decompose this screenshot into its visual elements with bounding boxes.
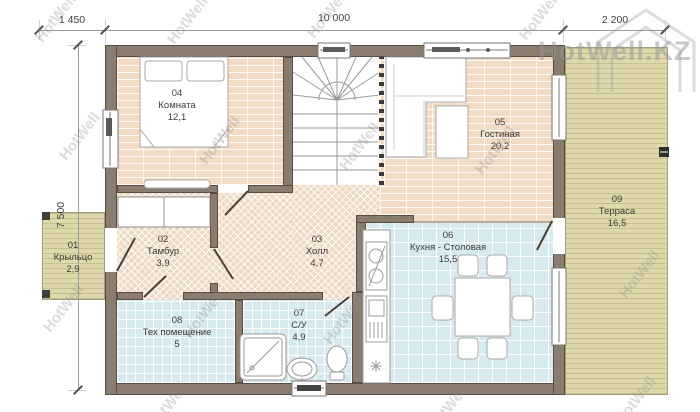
room-area: 12,1 — [168, 112, 187, 124]
room-area: 3,9 — [156, 258, 169, 270]
wall-bedroom-bottom-right — [248, 185, 293, 193]
wall-kitchen-top-cap — [356, 215, 414, 223]
room-label-porch: 01 Крыльцо 2,9 — [54, 240, 93, 276]
room-number: 04 — [172, 88, 183, 100]
room-name: Холл — [306, 246, 328, 258]
entry-door-gap — [105, 228, 117, 272]
stairs-floor — [293, 57, 380, 185]
terrace-door-gap — [553, 218, 565, 254]
room-label-hall: 03 Холл 4,7 — [306, 234, 328, 270]
watermark: HotWell — [164, 0, 212, 48]
room-area: 2,9 — [66, 264, 79, 276]
room-area: 4,9 — [292, 332, 305, 344]
room-number: 02 — [158, 234, 169, 246]
room-number: 05 — [495, 117, 506, 129]
room-area: 20,2 — [491, 141, 510, 153]
dim-left: 7 500 — [55, 202, 67, 228]
room-label-techroom: 08 Тех помещение 5 — [143, 315, 212, 351]
room-label-kitchen: 06 Кухня - Столовая 15,5 — [410, 230, 486, 266]
room-name: Тех помещение — [143, 327, 212, 339]
room-name: Комната — [158, 100, 195, 112]
extension-line — [105, 20, 106, 43]
wall-kitchen-left — [356, 215, 366, 292]
room-label-bedroom: 04 Комната 12,1 — [158, 88, 195, 124]
wall-tech-bath-divider — [235, 300, 243, 383]
living-floor — [380, 57, 553, 222]
room-number: 07 — [294, 308, 305, 320]
stair-section-cut — [378, 57, 385, 185]
floor-transition-line — [414, 221, 553, 223]
bedroom-floor — [117, 57, 283, 185]
room-area: 4,7 — [310, 258, 323, 270]
extension-line — [563, 20, 564, 43]
room-name: Крыльцо — [54, 252, 93, 264]
wall-hall-bottom-left — [117, 292, 143, 300]
room-name: С/У — [291, 320, 307, 332]
wall-bathroom-right — [352, 292, 366, 383]
wall-outer-top — [105, 45, 565, 57]
dim-top-right: 2 200 — [602, 14, 628, 26]
watermark: HotWell — [516, 0, 564, 44]
room-name: Тамбур — [147, 246, 179, 258]
room-label-living: 05 Гостиная 20,2 — [480, 117, 520, 153]
room-name: Кухня - Столовая — [410, 242, 486, 254]
wall-outer-bottom — [105, 383, 565, 395]
floor-plan-canvas: 1 450 10 000 2 200 7 500 01 Крыльцо 2,9 … — [0, 0, 700, 412]
room-area: 15,5 — [439, 254, 458, 266]
watermark: HotWell — [56, 109, 104, 163]
room-number: 09 — [612, 194, 623, 206]
dim-top-left: 1 450 — [59, 14, 85, 26]
room-number: 06 — [443, 230, 454, 242]
room-label-bathroom: 07 С/У 4,9 — [291, 308, 307, 344]
room-number: 03 — [312, 234, 323, 246]
wall-hall-bottom-mid — [183, 292, 323, 300]
wall-outer-left — [105, 45, 117, 395]
extension-line — [665, 20, 666, 45]
dimension-line-top — [39, 30, 666, 31]
dimension-line-left — [78, 45, 79, 390]
room-name: Терраса — [599, 206, 635, 218]
room-name: Гостиная — [480, 129, 520, 141]
wall-bedroom-right — [283, 57, 293, 193]
room-number: 01 — [68, 240, 79, 252]
room-area: 5 — [174, 339, 179, 351]
room-area: 16,5 — [608, 218, 627, 230]
wall-tambour-right-upper — [210, 193, 218, 248]
wall-bedroom-bottom-left — [117, 185, 218, 193]
dim-top-center: 10 000 — [318, 12, 350, 24]
room-label-terrace: 09 Терраса 16,5 — [599, 194, 635, 230]
room-number: 08 — [172, 315, 183, 327]
room-label-tambour: 02 Тамбур 3,9 — [147, 234, 179, 270]
